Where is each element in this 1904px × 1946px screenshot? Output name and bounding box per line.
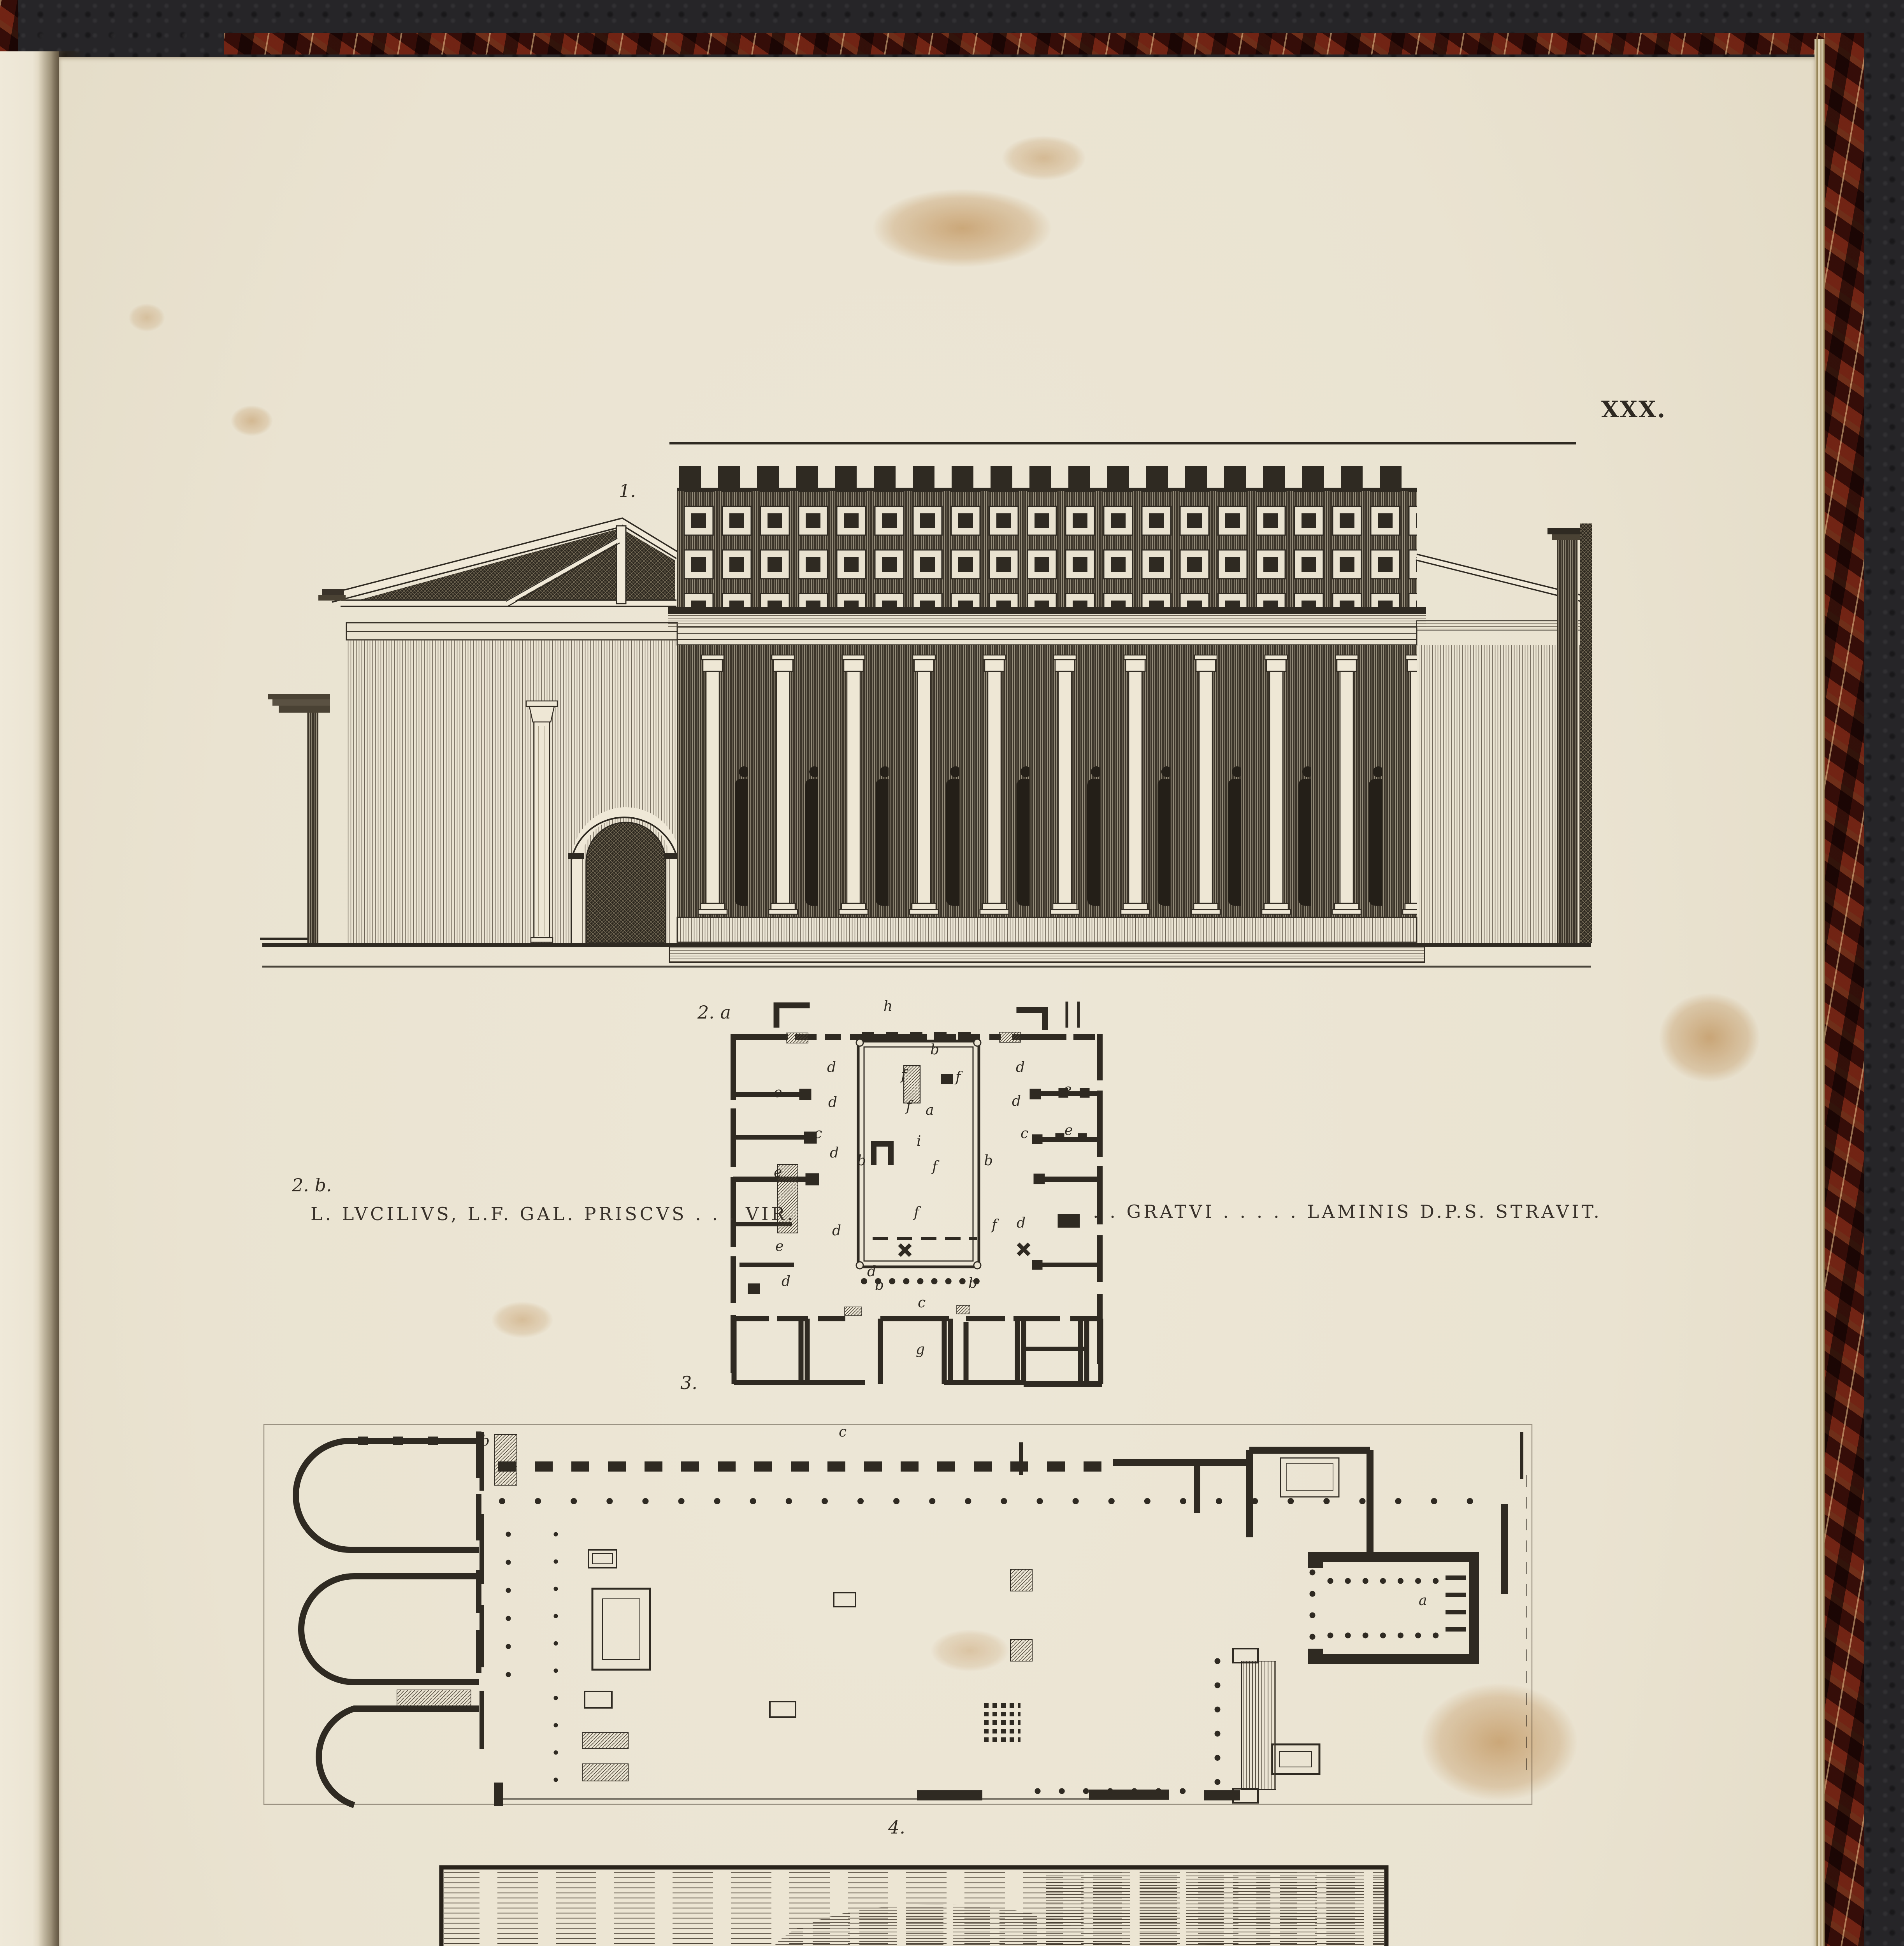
fig3-bottom-wall	[494, 1783, 1240, 1806]
plan-letter: c	[839, 1425, 847, 1439]
page-edge-stack	[1814, 39, 1825, 1946]
plan-letter: d	[782, 1275, 790, 1289]
fig3-temple	[1308, 1552, 1479, 1664]
plan-letter: b	[984, 1154, 993, 1168]
foxing-stain	[480, 1294, 565, 1345]
plan-letter: e	[1063, 1083, 1071, 1097]
foxing-stain	[985, 127, 1102, 189]
scanned-book-page: { "plate": { "number": "XXX." }, "inscri…	[0, 0, 1904, 1946]
figure2a-plan-drawing	[728, 996, 1117, 1389]
plan-letter: f	[956, 1070, 961, 1084]
figure1-elevation-engraving	[257, 426, 1596, 989]
plan-letter: a	[1419, 1594, 1427, 1608]
plan-letter: d	[1012, 1094, 1021, 1108]
plan-letter: f	[906, 1099, 911, 1114]
plan-letter: g	[916, 1343, 925, 1357]
fig1-central-block	[668, 477, 1426, 962]
plan-letter: b	[930, 1043, 939, 1057]
plan-letter: b	[968, 1277, 977, 1291]
fig1-top-rule	[669, 442, 1576, 444]
fig3-left-halls	[296, 1431, 482, 1806]
plan-letter: e	[1067, 1210, 1075, 1224]
plan-letter: i	[917, 1135, 921, 1149]
plan-letter: f	[901, 1068, 906, 1082]
fig3-court-monuments	[582, 1550, 1319, 1781]
plan-letter: b	[857, 1154, 866, 1168]
figure4-view-engraving: Alb: Schindler 1852.	[439, 1865, 1389, 1946]
plan-letter: a	[926, 1103, 934, 1117]
inscription-right: . . GRATVI . . . . . LAMINIS D.P.S. STRA…	[1093, 1201, 1602, 1222]
plate-number: XXX.	[1601, 396, 1666, 423]
plate-page: XXX. 1.	[59, 57, 1815, 1946]
plan-letter: d	[827, 1061, 836, 1075]
fig1-right-annex	[1416, 523, 1592, 943]
plan-letter: e	[774, 1086, 782, 1100]
plan-letter: c	[1021, 1127, 1028, 1141]
inscription-left: L. LVCILIVS, L.F. GAL. PRISCVS . . . VIR…	[311, 1203, 796, 1224]
inscription-label: 2. b.	[292, 1175, 332, 1196]
fig2a-courtyard	[856, 1039, 1029, 1281]
plan-letter: h	[883, 999, 892, 1013]
plan-letter: b	[481, 1434, 490, 1448]
fig3-temple-steps	[1233, 1649, 1276, 1803]
figure2a-plan: h b f f d d e e d f a d c c e i d b b f …	[728, 996, 1117, 1389]
plan-letter: f	[992, 1218, 997, 1232]
plan-letter: c	[814, 1127, 822, 1141]
marbled-board-right	[1824, 33, 1864, 1946]
plan-letter: e	[775, 1240, 783, 1254]
plan-letter: d	[828, 1096, 837, 1110]
marbled-board-top-strip	[224, 33, 1862, 54]
foxing-stain	[838, 174, 1087, 283]
plan-letter: e	[774, 1166, 782, 1180]
fig1-left-annex	[318, 518, 680, 943]
plan-letter: f	[932, 1160, 937, 1174]
plan-letter: d	[867, 1265, 876, 1279]
fig3-column-dots	[502, 1501, 1498, 1793]
figure3-plan: b c a	[261, 1421, 1537, 1810]
figure3-plan-drawing	[261, 1421, 1537, 1810]
fig1-left-pier	[260, 694, 330, 943]
foxing-stain	[1639, 975, 1779, 1100]
plan-letter: f	[914, 1206, 919, 1220]
plan-letter: b	[875, 1279, 884, 1293]
figure3-label: 3.	[680, 1372, 697, 1393]
plan-letter: d	[1017, 1216, 1026, 1230]
figure4-label: 4.	[888, 1817, 905, 1838]
figure2a-label: 2. a	[697, 1002, 731, 1023]
plan-letter: d	[832, 1224, 841, 1238]
plan-letter: e	[1064, 1124, 1073, 1138]
fig4-sky	[444, 1870, 1384, 1946]
plan-letter: c	[918, 1296, 926, 1310]
plan-letter: d	[1016, 1061, 1025, 1075]
fig3-border	[264, 1424, 1532, 1804]
foxing-stain	[121, 298, 172, 337]
plan-letter: d	[830, 1146, 839, 1160]
